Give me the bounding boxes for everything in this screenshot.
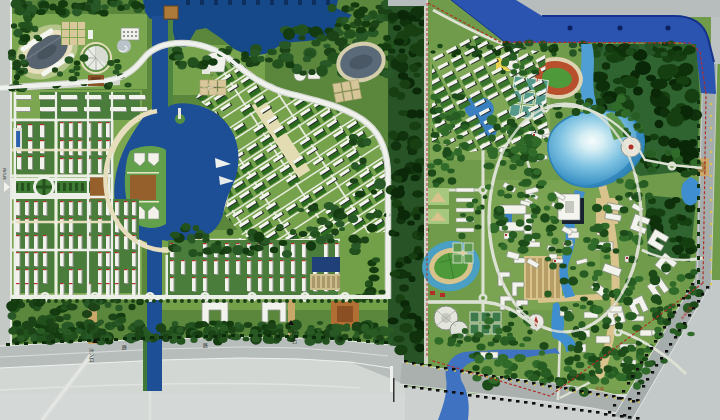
svg-text:路: 路 (122, 344, 127, 350)
svg-text:红线: 红线 (596, 386, 604, 391)
svg-text:路: 路 (203, 342, 208, 348)
svg-text:纬九路: 纬九路 (2, 168, 7, 180)
svg-text:主入口: 主入口 (88, 348, 95, 363)
svg-text:次入口: 次入口 (291, 330, 298, 345)
